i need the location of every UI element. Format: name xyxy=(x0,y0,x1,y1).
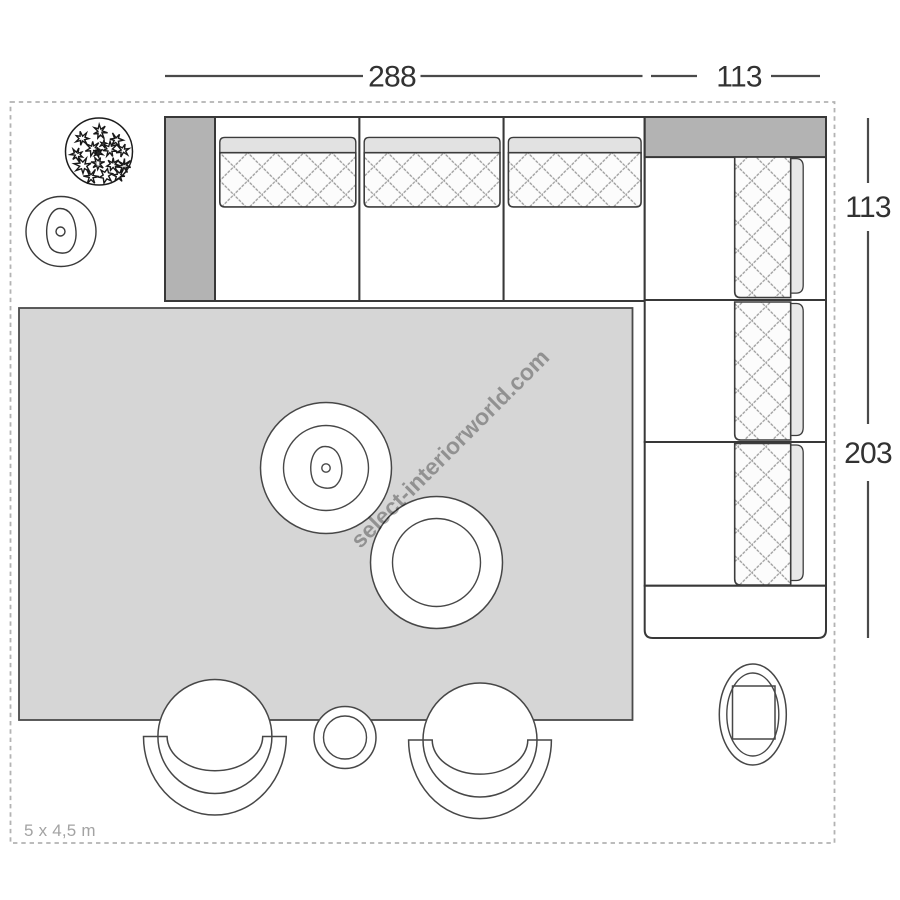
svg-text:288: 288 xyxy=(368,60,416,93)
svg-text:113: 113 xyxy=(716,60,762,93)
svg-text:203: 203 xyxy=(844,437,892,470)
svg-text:5 x 4,5 m: 5 x 4,5 m xyxy=(24,821,96,840)
svg-text:113: 113 xyxy=(845,191,891,224)
